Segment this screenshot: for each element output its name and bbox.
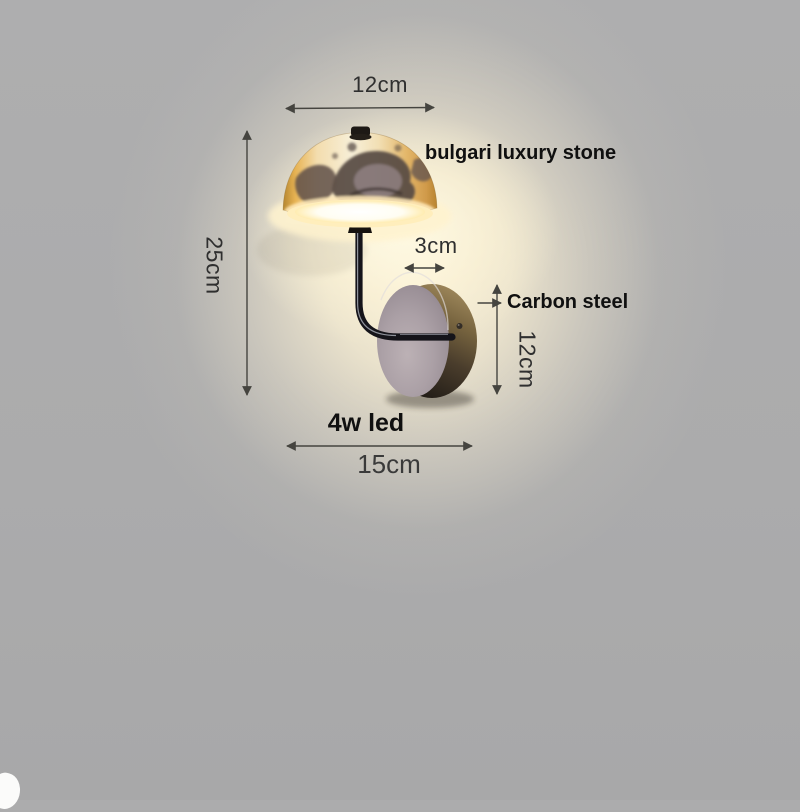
shade-diffuser <box>295 201 425 224</box>
mount-height-dimension: 12cm <box>514 315 541 405</box>
shade-width-arrow <box>286 108 434 109</box>
shade-material-label: bulgari luxury stone <box>425 142 616 165</box>
shade-width-dimension: 12cm <box>330 72 430 98</box>
mount-screw <box>457 323 463 329</box>
arm-offset-dimension: 3cm <box>386 233 486 259</box>
wall-lamp-illustration <box>0 0 800 800</box>
lamp-shade <box>283 127 437 229</box>
overall-height-dimension: 25cm <box>201 221 228 311</box>
mount-screw-highlight <box>458 324 460 326</box>
overall-width-dimension: 15cm <box>329 449 449 480</box>
mount-material-label: Carbon steel <box>507 291 628 314</box>
power-label: 4w led <box>306 409 426 438</box>
mount-face <box>377 285 449 397</box>
lamp-knob-base <box>350 134 372 140</box>
